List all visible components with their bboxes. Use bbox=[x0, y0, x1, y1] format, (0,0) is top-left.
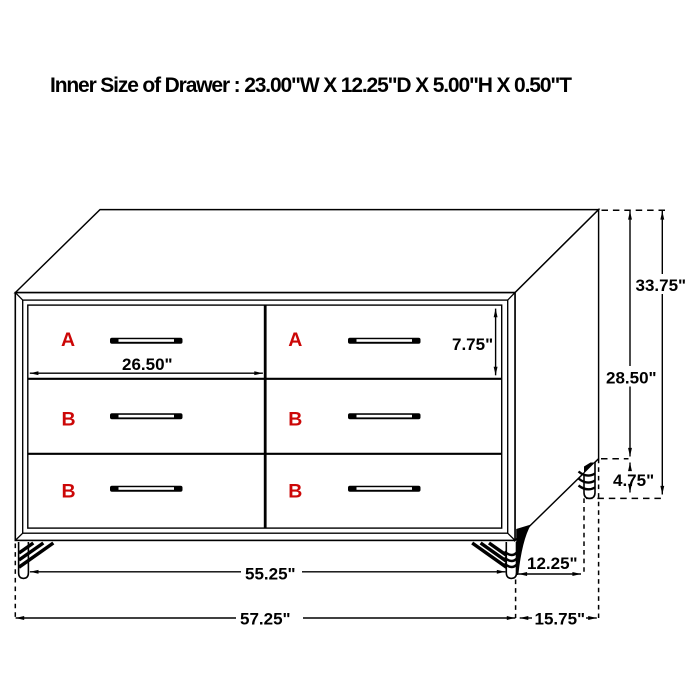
svg-text:4.75": 4.75" bbox=[613, 471, 654, 490]
svg-text:33.75": 33.75" bbox=[636, 276, 687, 295]
svg-text:15.75": 15.75" bbox=[535, 610, 586, 629]
svg-text:A: A bbox=[61, 329, 75, 351]
svg-text:28.50": 28.50" bbox=[606, 369, 657, 388]
svg-text:7.75": 7.75" bbox=[452, 335, 493, 354]
svg-text:B: B bbox=[288, 481, 302, 503]
svg-text:Inner Size of Drawer : 23.00"W: Inner Size of Drawer : 23.00"W X 12.25"D… bbox=[50, 74, 572, 97]
svg-text:B: B bbox=[62, 409, 76, 431]
svg-text:57.25": 57.25" bbox=[240, 610, 291, 629]
svg-text:B: B bbox=[288, 409, 302, 431]
svg-text:B: B bbox=[62, 481, 76, 503]
svg-text:26.50": 26.50" bbox=[122, 355, 173, 374]
svg-text:A: A bbox=[288, 329, 302, 351]
svg-text:55.25": 55.25" bbox=[245, 565, 296, 584]
svg-text:12.25": 12.25" bbox=[527, 554, 578, 573]
